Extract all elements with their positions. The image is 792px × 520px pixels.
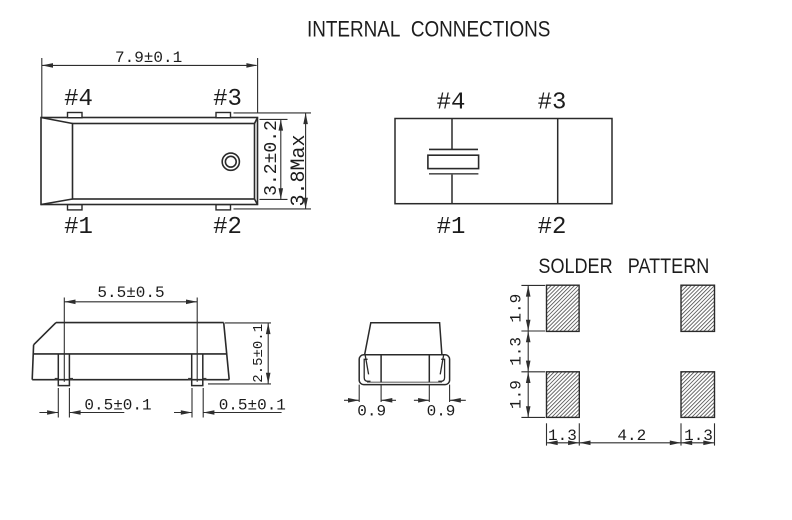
svg-text:INTERNAL CONNECTIONS: INTERNAL CONNECTIONS [307, 17, 550, 42]
svg-text:1.3: 1.3 [548, 427, 577, 445]
svg-text:#4: #4 [64, 86, 93, 113]
svg-text:#3: #3 [538, 90, 567, 117]
svg-text:#2: #2 [538, 214, 567, 241]
svg-text:1.3: 1.3 [684, 427, 713, 445]
svg-text:4.2: 4.2 [617, 427, 646, 445]
svg-text:SOLDER PATTERN: SOLDER PATTERN [538, 254, 709, 278]
svg-text:0.9: 0.9 [427, 402, 456, 420]
svg-text:1.9: 1.9 [507, 294, 525, 323]
svg-text:7.9±0.1: 7.9±0.1 [115, 49, 182, 67]
svg-text:0.9: 0.9 [357, 402, 386, 420]
svg-text:2.5±0.1: 2.5±0.1 [251, 324, 267, 383]
svg-text:#4: #4 [437, 90, 466, 117]
svg-text:#2: #2 [213, 214, 242, 241]
svg-text:1.9: 1.9 [507, 380, 525, 409]
svg-text:0.5±0.1: 0.5±0.1 [84, 397, 151, 415]
svg-text:3.2±0.2: 3.2±0.2 [262, 120, 282, 196]
svg-text:1.3: 1.3 [507, 337, 525, 366]
svg-text:3.8Max: 3.8Max [288, 134, 311, 206]
svg-text:5.5±0.5: 5.5±0.5 [97, 284, 164, 302]
svg-text:#3: #3 [213, 86, 242, 113]
svg-text:0.5±0.1: 0.5±0.1 [219, 397, 286, 415]
svg-text:#1: #1 [437, 214, 466, 241]
svg-text:#1: #1 [64, 214, 93, 241]
